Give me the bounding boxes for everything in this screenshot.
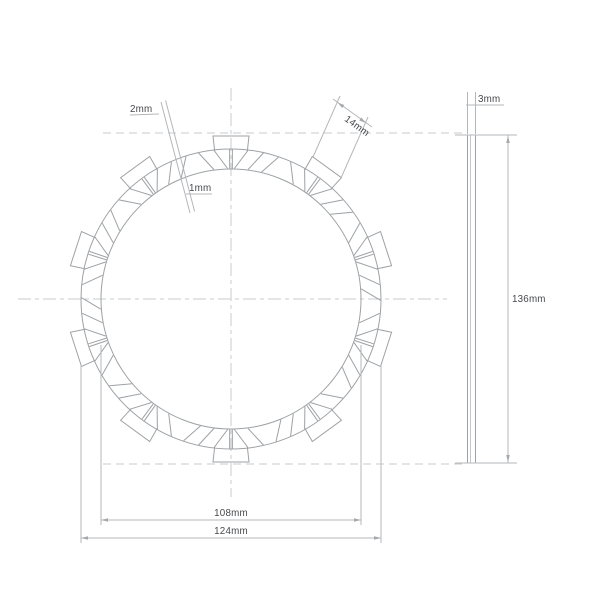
groove-extension-line	[166, 100, 195, 211]
friction-segment-line	[111, 210, 120, 231]
drive-tab	[121, 157, 158, 190]
drive-tab	[305, 157, 342, 190]
friction-segment-line	[291, 162, 294, 184]
friction-segment-line	[88, 338, 106, 344]
arrowhead	[506, 455, 510, 462]
dim-label-friction-inner-diameter: 108mm	[214, 508, 248, 519]
friction-segment-line	[102, 223, 113, 243]
dim-label-groove-width: 2mm	[130, 104, 152, 115]
friction-segment-line	[359, 313, 380, 323]
friction-segment-line	[109, 384, 132, 386]
friction-segment-line	[248, 428, 263, 445]
friction-segment-line	[291, 414, 294, 436]
friction-segment-line	[89, 341, 107, 347]
friction-segment-line	[130, 189, 152, 196]
friction-segment-line	[342, 367, 351, 388]
friction-segment-line	[119, 394, 141, 398]
friction-segment-line	[330, 212, 353, 214]
friction-segment-line	[89, 251, 107, 257]
friction-segment-line	[199, 428, 214, 445]
friction-segment-line	[321, 200, 343, 204]
friction-segment-line	[169, 162, 172, 184]
friction-segment-line	[85, 262, 106, 269]
friction-segment-line	[248, 153, 263, 170]
dim-label-tab-width: 14mm	[342, 114, 371, 139]
arrowhead	[374, 536, 381, 540]
friction-segment-line	[354, 237, 367, 255]
friction-segment-line	[214, 151, 228, 169]
friction-segment-line	[169, 414, 172, 436]
arrowhead	[81, 536, 88, 540]
friction-segment-line	[356, 262, 377, 269]
friction-segment-line	[82, 313, 103, 323]
tab-width-extension-line	[313, 96, 340, 157]
dimension-arrowheads	[81, 101, 510, 540]
drive-tab	[70, 329, 95, 366]
friction-segment-line	[359, 275, 380, 285]
friction-segment-line	[356, 254, 374, 260]
friction-segment-line	[234, 430, 248, 448]
dim-label-groove-inner-width: 1mm	[189, 183, 211, 194]
drive-tab	[121, 409, 158, 442]
arrowhead	[101, 518, 108, 522]
friction-segment-line	[355, 341, 373, 347]
friction-segment-line	[310, 189, 332, 196]
friction-segment-line	[349, 355, 360, 375]
plate-side-profile	[468, 135, 476, 463]
drawing-sheet: 2mm 1mm 14mm 3mm 136mm 108mm 124mm	[0, 0, 600, 600]
friction-segment-line	[119, 200, 141, 204]
friction-segment-line	[356, 329, 377, 336]
friction-segment-line	[356, 338, 374, 344]
friction-segment-line	[276, 420, 281, 442]
friction-segment-line	[102, 355, 113, 375]
drive-tab	[366, 232, 391, 269]
friction-segment-line	[82, 275, 103, 285]
friction-segment-line	[349, 223, 360, 243]
arrowhead	[354, 518, 361, 522]
arrowhead	[506, 136, 510, 143]
friction-segment-line	[310, 403, 332, 410]
friction-segment-line	[88, 254, 106, 260]
drive-tab	[366, 329, 391, 366]
drive-tab	[305, 409, 342, 442]
dim-label-plate-thickness: 3mm	[478, 94, 500, 105]
dim-label-friction-outer-diameter: 124mm	[214, 526, 248, 537]
friction-segment-line	[234, 151, 248, 169]
clutch-plate-technical-drawing: 2mm 1mm 14mm 3mm 136mm 108mm 124mm	[0, 0, 600, 600]
friction-segment-line	[95, 237, 108, 255]
friction-segment-line	[199, 153, 214, 170]
dim-label-overall-diameter: 136mm	[512, 294, 546, 305]
friction-segment-line	[321, 394, 343, 398]
friction-segment-line	[184, 426, 201, 441]
friction-segment-line	[85, 329, 106, 336]
friction-segment-line	[130, 403, 152, 410]
friction-segment-line	[262, 157, 279, 172]
friction-segment-line	[355, 251, 373, 257]
side-view-plate	[468, 135, 476, 463]
drive-tab	[70, 232, 95, 269]
friction-segment-line	[214, 430, 228, 448]
